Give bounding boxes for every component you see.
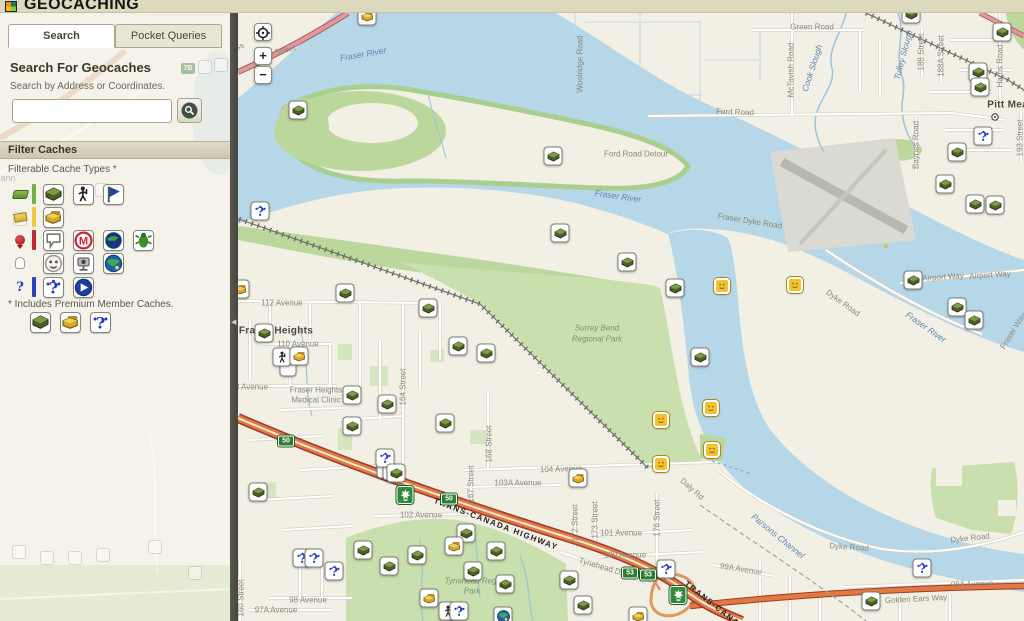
search-section-subtitle: Search by Address or Coordinates. xyxy=(10,81,165,92)
mystery-cache-marker[interactable]: ? xyxy=(305,549,324,568)
traditional-cache-marker[interactable] xyxy=(343,386,362,405)
search-input[interactable] xyxy=(12,99,172,123)
traditional-cache-marker[interactable] xyxy=(691,348,710,367)
multi-cache-marker[interactable] xyxy=(238,280,250,299)
traditional-cache-marker[interactable] xyxy=(965,311,984,330)
multi-cache-marker[interactable] xyxy=(358,13,377,26)
multi-premium-icon[interactable] xyxy=(60,312,81,333)
exit-number-badge: 53 xyxy=(622,568,638,579)
ghost-cache-marker xyxy=(40,551,54,565)
zoom-out-button[interactable]: − xyxy=(254,66,272,84)
traditional-cache-marker[interactable] xyxy=(496,575,515,594)
ghost-cache-marker xyxy=(188,566,202,580)
mystery-premium-icon[interactable]: ? xyxy=(90,312,111,333)
traditional-cache-marker[interactable] xyxy=(354,541,373,560)
mystery-cache-icon[interactable]: ? xyxy=(43,277,64,298)
mystery-cache-marker[interactable]: ? xyxy=(450,602,469,621)
traditional-cache-marker[interactable] xyxy=(408,546,427,565)
ghost-cache-marker xyxy=(214,58,228,72)
earthcache-icon[interactable] xyxy=(103,253,124,274)
trans-canada-highway-shield xyxy=(670,586,687,604)
traditional-cache-marker[interactable] xyxy=(666,279,685,298)
event-cache-icon[interactable] xyxy=(43,230,64,251)
ghost-cache-marker xyxy=(96,548,110,562)
traditional-cache-marker[interactable] xyxy=(255,324,274,343)
premium-icons-row: ? xyxy=(30,312,120,333)
multi-color-bar xyxy=(32,207,36,227)
traditional-cache-marker[interactable] xyxy=(904,271,923,290)
exit-number-badge: 50 xyxy=(441,494,457,505)
geocaching-logo: GEOCACHING xyxy=(24,0,139,13)
earthcache-marker[interactable] xyxy=(494,607,513,621)
traditional-cache-marker[interactable] xyxy=(380,557,399,576)
collapse-arrow-icon: ◀ xyxy=(231,318,236,326)
gps-adventures-icon[interactable] xyxy=(103,230,124,251)
multi-cache-marker[interactable] xyxy=(569,469,588,488)
sidebar-tabs: Search Pocket Queries xyxy=(8,24,222,48)
search-icon xyxy=(181,102,198,119)
cito-event-icon[interactable] xyxy=(133,230,154,251)
multi-cache-marker[interactable] xyxy=(629,607,648,621)
traditional-cache-marker[interactable] xyxy=(464,562,483,581)
svg-text:?: ? xyxy=(96,314,106,332)
sidebar-collapse-handle[interactable]: ◀ xyxy=(230,13,238,621)
filter-row-mystery: ? ? xyxy=(10,276,103,298)
filter-row-traditional xyxy=(10,183,133,205)
premium-note: * Includes Premium Member Caches. xyxy=(8,299,174,310)
traditional-cache-marker[interactable] xyxy=(936,175,955,194)
traditional-cache-marker[interactable] xyxy=(993,23,1012,42)
traditional-cache-icon[interactable] xyxy=(43,184,64,205)
traditional-cache-marker[interactable] xyxy=(289,101,308,120)
found-cache-smiley-marker[interactable] xyxy=(714,278,730,294)
traditional-cache-marker[interactable] xyxy=(862,592,881,611)
traditional-cache-marker[interactable] xyxy=(574,596,593,615)
mega-event-icon[interactable]: M xyxy=(73,230,94,251)
other-color-bar xyxy=(32,230,36,250)
multi-cache-marker[interactable] xyxy=(420,589,439,608)
filterable-types-label: Filterable Cache Types * xyxy=(8,164,117,175)
traditional-cache-marker[interactable] xyxy=(378,395,397,414)
traditional-dot-icon xyxy=(11,190,28,199)
multi-dot-icon xyxy=(13,211,27,222)
tab-search[interactable]: Search xyxy=(8,24,115,48)
filter-row-multi xyxy=(10,206,73,228)
traditional-cache-marker[interactable] xyxy=(449,337,468,356)
filter-caches-header: Filter Caches xyxy=(0,141,230,159)
traditional-cache-marker[interactable] xyxy=(902,13,921,24)
map-canvas xyxy=(238,13,1024,621)
traditional-cache-marker[interactable] xyxy=(971,78,990,97)
traditional-cache-marker[interactable] xyxy=(343,417,362,436)
found-cache-smiley-marker[interactable] xyxy=(703,400,719,416)
found-cache-smiley-marker[interactable] xyxy=(704,442,720,458)
multi-cache-marker[interactable] xyxy=(445,537,464,556)
ghost-cache-marker xyxy=(148,540,162,554)
other-dot-icon xyxy=(15,235,25,245)
mystery-color-bar xyxy=(32,277,36,297)
groundspeak-logo-icon xyxy=(5,1,17,12)
filter-row-other: M xyxy=(10,229,163,251)
ghost-cache-marker xyxy=(12,545,26,559)
traditional-cache-marker[interactable] xyxy=(948,143,967,162)
traditional-cache-marker[interactable] xyxy=(436,414,455,433)
virtual-cache-icon[interactable] xyxy=(43,253,64,274)
found-cache-smiley-marker[interactable] xyxy=(653,456,669,472)
app-header: GEOCACHING xyxy=(0,0,1024,13)
mystery-dot-icon: ? xyxy=(16,280,24,295)
traditional-cache-marker[interactable] xyxy=(551,224,570,243)
traditional-cache-marker[interactable] xyxy=(336,284,355,303)
traditional-cache-marker[interactable] xyxy=(419,299,438,318)
mystery-cache-marker[interactable]: ? xyxy=(251,202,270,221)
search-sidebar: Port Mann 7B Search Pocket Queries Searc… xyxy=(0,13,230,621)
traditional-premium-icon[interactable] xyxy=(30,312,51,333)
wherigo-flag-icon[interactable] xyxy=(103,184,124,205)
traditional-cache-marker[interactable] xyxy=(966,195,985,214)
found-cache-smiley-marker[interactable] xyxy=(653,412,669,428)
tab-pocket-queries[interactable]: Pocket Queries xyxy=(115,24,222,48)
traditional-color-bar xyxy=(32,184,36,204)
traditional-cache-marker[interactable] xyxy=(487,542,506,561)
webcam-cache-icon[interactable] xyxy=(73,253,94,274)
svg-text:M: M xyxy=(79,235,88,247)
multi-cache-icon[interactable] xyxy=(43,207,64,228)
traditional-cache-marker[interactable] xyxy=(986,196,1005,215)
filter-row-virtual xyxy=(10,252,133,274)
ghost-cache-marker xyxy=(198,60,212,74)
ghost-cache-marker xyxy=(68,551,82,565)
mystery-cache-marker[interactable]: ? xyxy=(974,127,993,146)
found-cache-smiley-marker[interactable] xyxy=(787,277,803,293)
exit-number-badge: 53 xyxy=(640,570,656,581)
virtual-color-bar xyxy=(32,253,36,273)
traditional-cache-marker[interactable] xyxy=(618,253,637,272)
map-viewport[interactable]: Fraser RiverFraser RiverFraser RiverCook… xyxy=(238,13,1024,621)
zoom-in-button[interactable]: + xyxy=(254,47,272,65)
hiker-icon[interactable] xyxy=(73,184,94,205)
mystery-cache-marker[interactable]: ? xyxy=(325,562,344,581)
locate-me-button[interactable] xyxy=(254,23,272,41)
search-section-title: Search For Geocaches xyxy=(10,60,151,75)
traditional-cache-marker[interactable] xyxy=(477,344,496,363)
traditional-cache-marker[interactable] xyxy=(387,464,406,483)
crosshair-icon xyxy=(255,25,271,41)
search-button[interactable] xyxy=(177,98,202,123)
exit-number-badge: 50 xyxy=(278,436,294,447)
traditional-cache-marker[interactable] xyxy=(560,571,579,590)
mystery-cache-marker[interactable]: ? xyxy=(657,560,676,579)
traditional-cache-marker[interactable] xyxy=(544,147,563,166)
ghost-highway-shield: 7B xyxy=(181,63,195,74)
mystery-cache-marker[interactable]: ? xyxy=(913,559,932,578)
virtual-dot-icon xyxy=(15,257,25,269)
multi-cache-marker[interactable] xyxy=(290,347,309,366)
traditional-cache-marker[interactable] xyxy=(249,483,268,502)
trans-canada-highway-shield xyxy=(397,486,414,504)
wherigo-cache-icon[interactable] xyxy=(73,277,94,298)
